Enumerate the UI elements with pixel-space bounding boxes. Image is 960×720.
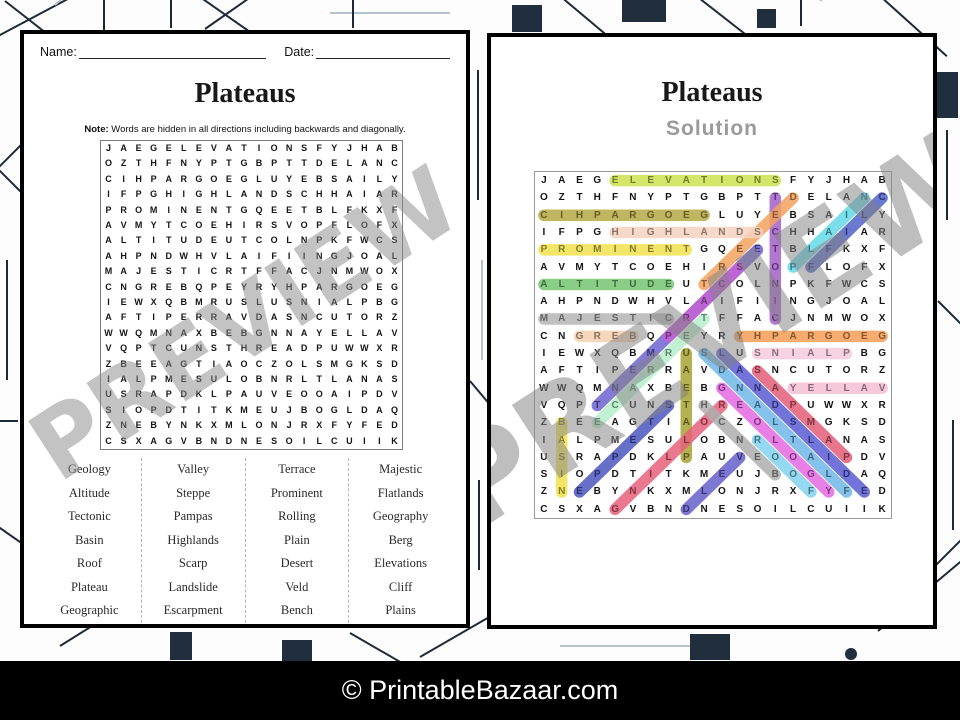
grid-letter: Y (642, 189, 660, 206)
grid-letter: I (161, 203, 176, 218)
grid-letter: R (713, 328, 731, 345)
grid-letter: U (802, 397, 820, 414)
grid-letter: H (677, 259, 695, 276)
grid-letter: Q (252, 203, 267, 218)
grid-letter: T (695, 276, 713, 293)
grid-letter: L (624, 172, 642, 189)
grid-letter: P (660, 328, 678, 345)
grid-letter: C (252, 357, 267, 372)
grid-letter: A (146, 434, 161, 449)
grid-letter: U (624, 276, 642, 293)
grid-letter: B (206, 326, 221, 341)
grid-letter: M (131, 218, 146, 233)
grid-letter: W (535, 380, 553, 397)
grid-letter: U (101, 387, 116, 402)
grid-letter: F (802, 483, 820, 500)
grid-letter: L (176, 141, 191, 156)
grid-letter: T (571, 362, 589, 379)
grid-letter: T (221, 203, 236, 218)
grid-letter: I (236, 218, 251, 233)
name-blank-line[interactable] (79, 45, 266, 59)
grid-letter: L (327, 372, 342, 387)
grid-letter: S (749, 362, 767, 379)
grid-letter: L (855, 207, 873, 224)
grid-letter: R (660, 362, 678, 379)
grid-letter: S (749, 224, 767, 241)
grid-letter: O (766, 449, 784, 466)
grid-letter: A (784, 328, 802, 345)
grid-letter: Y (606, 483, 624, 500)
grid-letter: N (606, 380, 624, 397)
grid-letter: R (624, 207, 642, 224)
grid-letter: V (731, 449, 749, 466)
grid-letter: O (571, 466, 589, 483)
grid-letter: M (820, 310, 838, 327)
grid-letter: S (297, 141, 312, 156)
grid-letter: O (731, 276, 749, 293)
grid-letter: J (820, 172, 838, 189)
puzzle-title: Plateaus (24, 78, 466, 110)
grid-letter: E (624, 362, 642, 379)
grid-letter: M (571, 259, 589, 276)
grid-letter: E (131, 357, 146, 372)
grid-letter: X (131, 434, 146, 449)
date-label: Date: (284, 45, 314, 59)
grid-letter: R (571, 449, 589, 466)
grid-letter: L (312, 434, 327, 449)
word-list-item: Veld (246, 581, 349, 594)
grid-letter: L (357, 326, 372, 341)
grid-letter: L (327, 203, 342, 218)
grid-letter: V (387, 326, 402, 341)
grid-letter: L (342, 156, 357, 171)
grid-letter: Y (342, 418, 357, 433)
grid-letter: X (660, 483, 678, 500)
grid-letter: Z (873, 362, 891, 379)
grid-letter: Y (588, 259, 606, 276)
grid-letter: E (131, 418, 146, 433)
grid-letter: L (236, 418, 251, 433)
grid-letter: K (327, 233, 342, 248)
word-list-item: Cliff (349, 581, 452, 594)
grid-letter: A (101, 310, 116, 325)
grid-letter: T (660, 466, 678, 483)
grid-letter: B (146, 418, 161, 433)
grid-letter: D (297, 341, 312, 356)
grid-letter: L (660, 449, 678, 466)
grid-letter: F (327, 218, 342, 233)
word-list-item: Plain (246, 534, 349, 547)
grid-letter: G (695, 207, 713, 224)
grid-letter: A (372, 326, 387, 341)
grid-letter: N (191, 341, 206, 356)
grid-letter: A (624, 380, 642, 397)
grid-letter: F (873, 241, 891, 258)
grid-letter: K (642, 483, 660, 500)
grid-letter: M (588, 241, 606, 258)
grid-letter: C (206, 264, 221, 279)
grid-letter: L (571, 432, 589, 449)
grid-letter: Y (749, 207, 767, 224)
grid-letter: P (535, 241, 553, 258)
grid-letter: T (677, 397, 695, 414)
grid-letter: B (713, 189, 731, 206)
grid-letter: U (731, 466, 749, 483)
grid-letter: R (766, 483, 784, 500)
grid-letter: V (660, 293, 678, 310)
grid-letter: S (387, 233, 402, 248)
grid-letter: B (553, 414, 571, 431)
grid-letter: C (766, 310, 784, 327)
grid-letter: Q (387, 403, 402, 418)
grid-letter: R (252, 218, 267, 233)
grid-letter: L (297, 357, 312, 372)
grid-letter: K (802, 276, 820, 293)
grid-letter: C (327, 434, 342, 449)
grid-letter: O (838, 293, 856, 310)
grid-letter: X (387, 264, 402, 279)
grid-letter: T (176, 403, 191, 418)
grid-letter: E (221, 280, 236, 295)
grid-letter: Y (873, 207, 891, 224)
grid-letter: S (312, 357, 327, 372)
grid-letter: W (838, 310, 856, 327)
grid-letter: Y (731, 328, 749, 345)
grid-letter: X (372, 341, 387, 356)
grid-letter: C (252, 233, 267, 248)
grid-letter: D (606, 293, 624, 310)
grid-letter: D (357, 403, 372, 418)
grid-letter: A (221, 357, 236, 372)
grid-letter: G (146, 141, 161, 156)
grid-letter: A (116, 372, 131, 387)
grid-letter: P (146, 372, 161, 387)
grid-letter: K (191, 418, 206, 433)
grid-letter: X (191, 326, 206, 341)
grid-letter: O (236, 372, 251, 387)
grid-letter: G (713, 380, 731, 397)
grid-letter: B (252, 372, 267, 387)
grid-letter: D (372, 387, 387, 402)
grid-letter: A (677, 172, 695, 189)
grid-letter: I (252, 141, 267, 156)
grid-letter: A (327, 387, 342, 402)
grid-letter: D (731, 224, 749, 241)
grid-letter: T (297, 203, 312, 218)
footer-copyright: © PrintableBazaar.com (342, 675, 619, 706)
grid-letter: S (236, 295, 251, 310)
grid-letter: I (588, 276, 606, 293)
grid-letter: M (342, 264, 357, 279)
grid-letter: A (802, 449, 820, 466)
grid-letter: O (357, 280, 372, 295)
grid-letter: Y (282, 172, 297, 187)
grid-letter: O (252, 418, 267, 433)
grid-letter: F (267, 264, 282, 279)
grid-letter: S (206, 341, 221, 356)
grid-letter: L (252, 295, 267, 310)
grid-letter: S (731, 501, 749, 518)
grid-letter: S (553, 501, 571, 518)
grid-letter: V (553, 259, 571, 276)
grid-letter: A (749, 310, 767, 327)
grid-letter: N (161, 326, 176, 341)
grid-letter: R (588, 328, 606, 345)
grid-letter: U (820, 501, 838, 518)
grid-letter: R (372, 310, 387, 325)
grid-letter: C (101, 280, 116, 295)
grid-letter: I (766, 293, 784, 310)
grid-letter: B (660, 380, 678, 397)
grid-letter: E (606, 328, 624, 345)
grid-letter: L (820, 466, 838, 483)
grid-letter: Y (236, 280, 251, 295)
grid-letter: I (660, 414, 678, 431)
grid-letter: T (695, 172, 713, 189)
grid-letter: N (297, 295, 312, 310)
grid-letter: E (553, 345, 571, 362)
grid-letter: D (191, 233, 206, 248)
grid-letter: E (731, 241, 749, 258)
grid-letter: G (387, 280, 402, 295)
grid-letter: A (372, 372, 387, 387)
grid-letter: J (820, 293, 838, 310)
grid-letter: Z (387, 310, 402, 325)
grid-letter: E (606, 172, 624, 189)
grid-letter: Y (387, 172, 402, 187)
grid-letter: J (101, 141, 116, 156)
grid-letter: G (624, 414, 642, 431)
grid-letter: E (327, 156, 342, 171)
grid-letter: P (146, 172, 161, 187)
grid-letter: G (873, 345, 891, 362)
grid-letter: U (342, 434, 357, 449)
grid-letter: E (855, 328, 873, 345)
grid-letter: B (387, 141, 402, 156)
grid-letter: E (588, 310, 606, 327)
puzzle-page: Name: Date: Plateaus Note: Words are hid… (20, 30, 470, 628)
grid-letter: L (820, 380, 838, 397)
grid-letter: N (267, 372, 282, 387)
grid-letter: G (236, 203, 251, 218)
grid-letter: L (677, 293, 695, 310)
grid-letter: Z (101, 418, 116, 433)
grid-letter: D (873, 483, 891, 500)
grid-letter: I (553, 207, 571, 224)
grid-letter: Q (131, 326, 146, 341)
grid-letter: T (642, 414, 660, 431)
grid-letter: T (784, 432, 802, 449)
grid-letter: E (131, 141, 146, 156)
grid-letter: O (297, 218, 312, 233)
grid-letter: K (191, 387, 206, 402)
grid-letter: F (713, 310, 731, 327)
grid-letter: V (873, 449, 891, 466)
grid-letter: W (838, 276, 856, 293)
grid-letter: X (873, 310, 891, 327)
grid-letter: V (624, 501, 642, 518)
grid-letter: F (387, 203, 402, 218)
grid-letter: R (387, 187, 402, 202)
grid-letter: B (784, 207, 802, 224)
grid-letter: Z (116, 156, 131, 171)
footer-bar: © PrintableBazaar.com (0, 661, 960, 720)
grid-letter: W (553, 380, 571, 397)
grid-letter: P (131, 187, 146, 202)
grid-letter: N (749, 172, 767, 189)
grid-letter: E (642, 172, 660, 189)
grid-letter: T (624, 310, 642, 327)
grid-letter: L (553, 276, 571, 293)
grid-letter: E (252, 403, 267, 418)
grid-letter: C (372, 233, 387, 248)
grid-letter: T (191, 357, 206, 372)
grid-letter: L (802, 241, 820, 258)
date-blank-line[interactable] (316, 45, 450, 59)
grid-letter: B (624, 328, 642, 345)
grid-letter: N (553, 483, 571, 500)
grid-letter: X (206, 418, 221, 433)
grid-letter: D (312, 156, 327, 171)
grid-letter: T (766, 241, 784, 258)
grid-letter: O (695, 432, 713, 449)
grid-letter: V (535, 397, 553, 414)
grid-letter: U (677, 345, 695, 362)
grid-letter: H (131, 172, 146, 187)
grid-letter: E (855, 483, 873, 500)
grid-letter: T (131, 233, 146, 248)
grid-letter: T (131, 156, 146, 171)
grid-letter: U (535, 449, 553, 466)
word-list-item: Pampas (142, 510, 245, 523)
grid-letter: I (146, 310, 161, 325)
grid-letter: M (161, 372, 176, 387)
grid-letter: T (571, 189, 589, 206)
grid-letter: O (855, 310, 873, 327)
grid-letter: T (161, 218, 176, 233)
grid-letter: T (161, 233, 176, 248)
grid-letter: O (838, 259, 856, 276)
grid-letter: F (372, 218, 387, 233)
grid-letter: L (342, 295, 357, 310)
grid-letter: C (713, 276, 731, 293)
grid-letter: V (387, 387, 402, 402)
grid-letter: C (297, 264, 312, 279)
grid-letter: G (802, 293, 820, 310)
grid-letter: E (206, 233, 221, 248)
grid-letter: D (221, 434, 236, 449)
grid-letter: R (327, 280, 342, 295)
grid-letter: E (588, 414, 606, 431)
grid-letter: P (838, 345, 856, 362)
grid-letter: I (535, 224, 553, 241)
word-list-item: Altitude (38, 487, 141, 500)
grid-letter: D (713, 362, 731, 379)
grid-letter: W (571, 345, 589, 362)
grid-letter: Z (553, 189, 571, 206)
grid-letter: B (766, 466, 784, 483)
grid-letter: H (206, 187, 221, 202)
grid-letter: Q (642, 328, 660, 345)
grid-letter: I (191, 403, 206, 418)
word-list-item: Terrace (246, 463, 349, 476)
grid-letter: C (161, 341, 176, 356)
grid-letter: T (766, 189, 784, 206)
grid-letter: V (236, 310, 251, 325)
grid-letter: L (387, 249, 402, 264)
grid-letter: N (784, 293, 802, 310)
grid-letter: A (176, 326, 191, 341)
word-list-item: Majestic (349, 463, 452, 476)
word-list-item: Berg (349, 534, 452, 547)
grid-letter: C (873, 189, 891, 206)
grid-letter: U (267, 403, 282, 418)
grid-letter: T (749, 189, 767, 206)
grid-letter: D (387, 418, 402, 433)
grid-letter: O (357, 310, 372, 325)
grid-letter: N (749, 380, 767, 397)
grid-letter: T (588, 397, 606, 414)
grid-letter: U (731, 345, 749, 362)
grid-letter: M (695, 466, 713, 483)
grid-letter: T (606, 259, 624, 276)
grid-letter: I (588, 362, 606, 379)
grid-letter: M (101, 264, 116, 279)
grid-letter: K (387, 434, 402, 449)
grid-letter: K (677, 466, 695, 483)
grid-letter: M (606, 432, 624, 449)
grid-letter: P (784, 397, 802, 414)
grid-letter: E (624, 432, 642, 449)
grid-letter: P (731, 189, 749, 206)
grid-letter: U (221, 233, 236, 248)
grid-letter: S (855, 414, 873, 431)
grid-letter: P (838, 449, 856, 466)
grid-letter: B (713, 432, 731, 449)
grid-letter: A (588, 501, 606, 518)
grid-letter: A (342, 187, 357, 202)
grid-letter: T (236, 264, 251, 279)
grid-letter: U (252, 387, 267, 402)
grid-letter: R (252, 341, 267, 356)
grid-letter: G (191, 187, 206, 202)
grid-letter: E (297, 172, 312, 187)
name-label: Name: (40, 45, 77, 59)
grid-letter: S (116, 387, 131, 402)
grid-letter: U (327, 310, 342, 325)
grid-letter: O (236, 357, 251, 372)
grid-letter: H (606, 224, 624, 241)
grid-letter: O (206, 172, 221, 187)
grid-letter: J (535, 172, 553, 189)
grid-letter: R (873, 397, 891, 414)
grid-letter: W (357, 233, 372, 248)
grid-letter: L (713, 207, 731, 224)
grid-letter: T (146, 341, 161, 356)
grid-letter: M (146, 326, 161, 341)
grid-letter: H (553, 293, 571, 310)
grid-letter: C (176, 218, 191, 233)
grid-letter: O (131, 203, 146, 218)
grid-letter: A (282, 341, 297, 356)
grid-letter: C (766, 224, 784, 241)
grid-letter: P (357, 295, 372, 310)
word-list-item: Geology (38, 463, 141, 476)
grid-letter: L (342, 218, 357, 233)
grid-letter: I (146, 233, 161, 248)
grid-letter: I (695, 259, 713, 276)
grid-letter: C (312, 310, 327, 325)
